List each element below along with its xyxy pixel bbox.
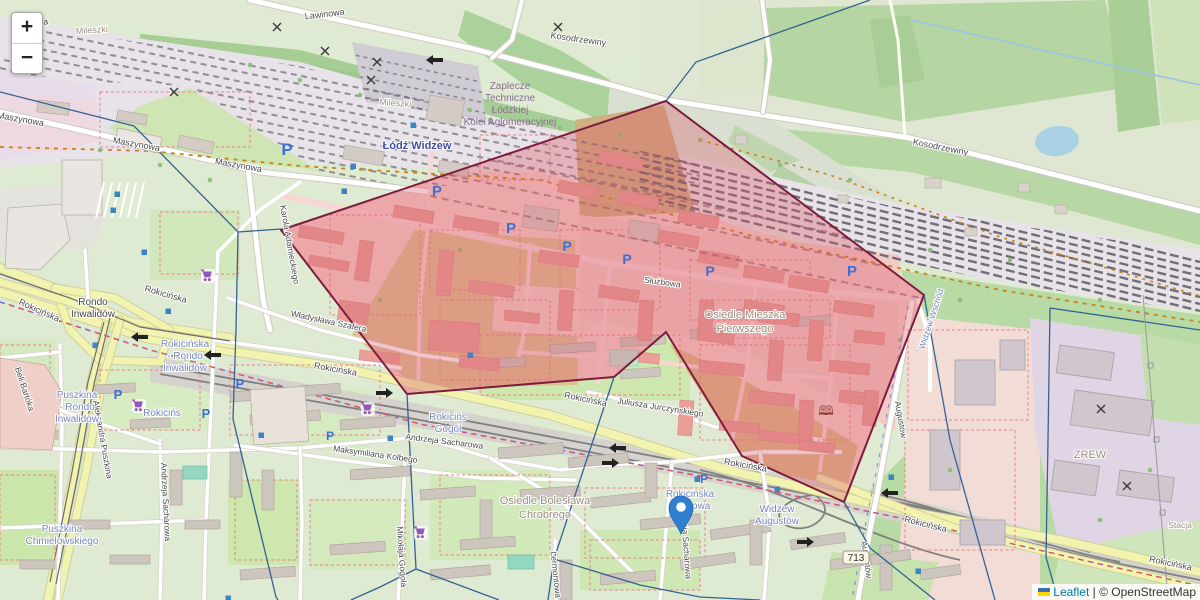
- svg-text:Pierwszego: Pierwszego: [717, 323, 774, 335]
- svg-text:Rokicińska: Rokicińska: [666, 489, 715, 500]
- svg-text:Puszkina: Puszkina: [42, 524, 83, 535]
- svg-text:713: 713: [848, 553, 865, 564]
- svg-text:Chmielowskiego: Chmielowskiego: [26, 536, 99, 547]
- svg-text:P: P: [622, 251, 631, 267]
- svg-text:Puszkina: Puszkina: [57, 390, 98, 401]
- svg-text:Rokicińska: Rokicińska: [161, 339, 210, 350]
- svg-text:Inwalidów: Inwalidów: [163, 363, 208, 374]
- svg-text:Widzew: Widzew: [759, 504, 795, 515]
- svg-text:P: P: [562, 238, 571, 254]
- svg-text:Augustów: Augustów: [755, 516, 800, 527]
- svg-text:Łódzkiej: Łódzkiej: [492, 105, 529, 116]
- svg-text:P: P: [281, 140, 292, 159]
- svg-text:P: P: [705, 263, 714, 279]
- svg-text:Rondo: Rondo: [78, 297, 108, 308]
- svg-text:P: P: [506, 220, 516, 237]
- svg-text:P: P: [326, 429, 334, 443]
- svg-text:Zaplecze: Zaplecze: [490, 81, 531, 92]
- svg-text:Inwalidów: Inwalidów: [71, 309, 116, 320]
- svg-text:Gogól: Gogól: [435, 424, 462, 435]
- svg-text:P: P: [202, 406, 211, 421]
- svg-text:P: P: [847, 263, 857, 280]
- svg-text:P: P: [236, 376, 245, 391]
- svg-text:P: P: [700, 472, 708, 486]
- svg-text:Rokicińs: Rokicińs: [143, 408, 181, 419]
- svg-text:P: P: [114, 387, 123, 402]
- svg-text:- Rondo: - Rondo: [167, 351, 203, 362]
- svg-text:Inwalidów: Inwalidów: [55, 414, 100, 425]
- svg-text:Osiedle Bolesława: Osiedle Bolesława: [500, 495, 591, 507]
- svg-text:Chrobrego: Chrobrego: [519, 509, 571, 521]
- svg-text:🕮: 🕮: [818, 403, 833, 418]
- svg-text:ZREW: ZREW: [1074, 449, 1107, 461]
- svg-text:Kolei Aglomeracyjnej: Kolei Aglomeracyjnej: [464, 117, 557, 128]
- svg-text:P: P: [432, 183, 442, 200]
- svg-text:- Rondo: - Rondo: [59, 402, 95, 413]
- svg-text:Osiedle Mieszka: Osiedle Mieszka: [705, 309, 787, 321]
- svg-text:Techniczne: Techniczne: [485, 93, 535, 104]
- svg-text:Łódź Widzew: Łódź Widzew: [383, 140, 452, 152]
- svg-text:Rokicińs: Rokicińs: [429, 412, 467, 423]
- svg-text:Stacja: Stacja: [1168, 520, 1192, 530]
